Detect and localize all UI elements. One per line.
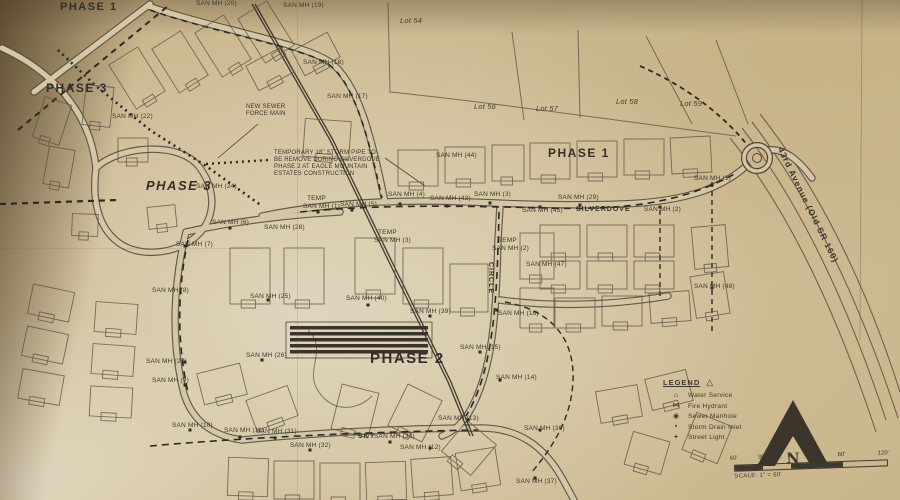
legend-item-storm-drain-inlet: Storm Drain Inlet xyxy=(671,423,813,433)
manhole-label: SAN MH (3) xyxy=(474,192,511,199)
manhole-label: SAN MH (32) xyxy=(290,443,331,450)
legend-label: Sewer Manhole xyxy=(688,413,737,420)
manhole-label: SAN MH (11) xyxy=(224,428,264,435)
manhole-label: SAN MH (28) xyxy=(264,225,305,232)
manhole-label: TEMP xyxy=(378,230,397,237)
manhole-label: SAN MH (14) xyxy=(496,375,537,382)
manhole-label: SAN MH (27) xyxy=(146,359,187,366)
manhole-label: SAN MH (17) xyxy=(327,94,368,101)
street-label: SILVERDOVE xyxy=(576,206,631,213)
manhole-label: SAN MH (20) xyxy=(196,1,237,8)
manhole-label: SAN MH (1) xyxy=(694,176,731,183)
water-service-icon xyxy=(671,392,681,400)
phase-label: PHASE 3 xyxy=(46,82,108,94)
manhole-label: SAN MH (45) xyxy=(522,208,563,215)
plan-note: NEW SEWERFORCE MAIN xyxy=(246,104,286,118)
manhole-label: SAN MH (5) xyxy=(340,202,377,209)
manhole-label: SAN MH (25) xyxy=(250,294,291,301)
street-label: 43rd Avenue (Old SR 160) xyxy=(776,146,839,264)
manhole-label: SAN MH (1) xyxy=(303,204,340,211)
manhole-label: SAN MH (18) xyxy=(303,60,344,67)
sewer-manhole-icon xyxy=(671,413,681,421)
legend-label: Water Service xyxy=(688,392,732,399)
manhole-label: SAN MH (15) xyxy=(460,345,501,352)
phase-label: PHASE 3 xyxy=(146,179,212,192)
manhole-label: TEMP xyxy=(307,196,326,203)
phase-label: PHASE 2 xyxy=(370,351,445,366)
scale-tick-label: 120' xyxy=(878,450,889,456)
manhole-label: SAN MH (10) xyxy=(172,423,213,430)
lot-label: Lot 58 xyxy=(616,98,638,106)
phase-label: PHASE 1 xyxy=(548,147,610,159)
manhole-label: SAN MH (33) xyxy=(374,434,415,441)
street-label: SKY xyxy=(358,433,375,440)
manhole-label: SAN MH (44) xyxy=(436,153,477,160)
manhole-label: SAN MH (48) xyxy=(694,284,735,291)
legend: LEGEND△ Water Service Fire Hydrant Sewer… xyxy=(663,372,813,443)
phase-label: PHASE 1 xyxy=(60,2,118,13)
scale-tick-label: 30' xyxy=(758,455,766,461)
manhole-label: SAN MH (39) xyxy=(410,309,451,316)
lot-label: Lot 56 xyxy=(474,103,496,111)
lot-label: Lot 54 xyxy=(400,17,422,25)
manhole-label: SAN MH (6) xyxy=(212,220,249,227)
fire-hydrant-icon xyxy=(671,402,681,410)
manhole-label: SAN MH (26) xyxy=(246,353,287,360)
manhole-label: SAN MH (13) xyxy=(438,416,479,423)
manhole-label: SAN MH (36) xyxy=(524,426,565,433)
legend-label: Storm Drain Inlet xyxy=(688,424,742,431)
legend-title: LEGEND xyxy=(663,378,700,387)
legend-label: Street Light xyxy=(688,434,725,441)
manhole-label: SAN MH (2) xyxy=(492,246,529,253)
site-plan-photo: N SAN MH (20)SAN MH (19)SAN MH (18)SAN M… xyxy=(0,0,900,500)
legend-item-sewer-manhole: Sewer Manhole xyxy=(671,412,813,422)
revision-triangle-icon: △ xyxy=(706,377,713,387)
manhole-label: SAN MH (8) xyxy=(152,288,189,295)
plan-note: TEMPORARY 18" STORM PIPE TOBE REMOVE DUR… xyxy=(274,150,380,178)
manhole-label: SAN MH (40) xyxy=(346,296,387,303)
legend-item-fire-hydrant: Fire Hydrant xyxy=(671,402,813,412)
scale-tick-label: 0' xyxy=(788,454,793,460)
legend-label: Fire Hydrant xyxy=(688,403,727,410)
manhole-label: SAN MH (16) xyxy=(498,311,539,318)
manhole-label: SAN MH (29) xyxy=(558,195,599,202)
manhole-label: SAN MH (7) xyxy=(176,242,213,249)
manhole-label: SAN MH (37) xyxy=(516,479,557,486)
storm-drain-inlet-icon xyxy=(671,423,681,431)
manhole-label: TEMP xyxy=(498,238,517,245)
lot-label: Lot 57 xyxy=(536,105,558,113)
manhole-label: SAN MH (2) xyxy=(644,207,681,214)
manhole-label: SAN MH (22) xyxy=(112,114,153,121)
scale-tick-label: 60' xyxy=(838,452,846,458)
street-light-icon xyxy=(671,434,681,442)
manhole-label: SAN MH (9) xyxy=(152,378,189,385)
scale-tick-label: 60' xyxy=(730,456,738,462)
street-label: CIRCLE xyxy=(487,262,494,294)
manhole-label: SAN MH (43) xyxy=(430,196,471,203)
manhole-label: SAN MH (4) xyxy=(388,192,425,199)
manhole-label: SAN MH (3) xyxy=(374,238,411,245)
legend-item-street-light: Street Light xyxy=(671,433,813,443)
lot-label: Lot 59 xyxy=(680,100,702,108)
manhole-label: SAN MH (19) xyxy=(283,3,324,10)
manhole-label: SAN MH (12) xyxy=(400,445,441,452)
manhole-label: SAN MH (47) xyxy=(526,262,567,269)
legend-item-water-service: Water Service xyxy=(671,391,813,401)
